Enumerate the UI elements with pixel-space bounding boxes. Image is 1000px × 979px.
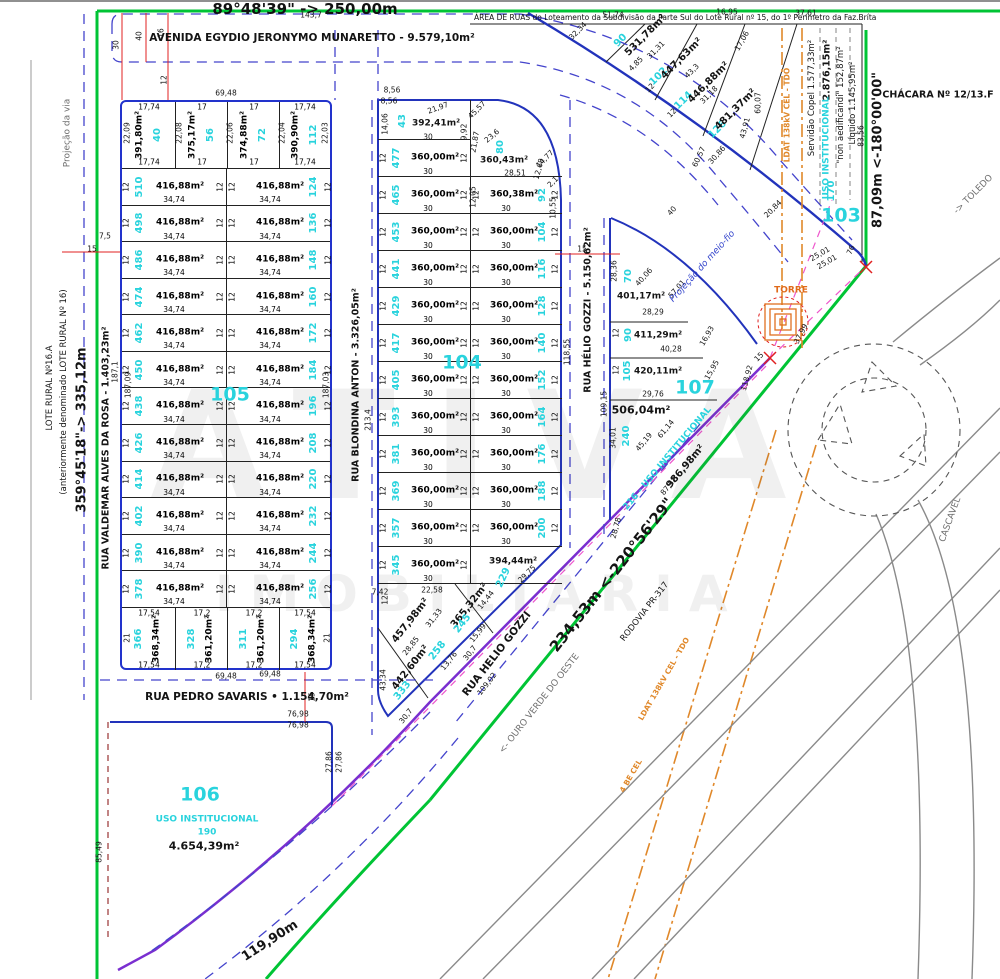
map-linework — [0, 0, 1000, 979]
dimension-red-lines — [62, 13, 872, 722]
sheet-title: ÁREA DE RUAS do Loteamento da Subdivisão… — [474, 13, 998, 22]
sheet-lines — [0, 1, 1000, 700]
boundary-north-title: 89°48'39" -> 250,00m — [120, 0, 490, 18]
strip-dashed-gray — [820, 28, 850, 210]
highway-gray-lines — [440, 258, 1000, 979]
road-purple-line — [118, 358, 770, 970]
roundabout — [788, 344, 960, 516]
boundary-green-line — [97, 11, 1000, 979]
subdivision-plat-map: ATIVA IMOBILIÁRIA 89°48'39" -> 250,00m Á… — [0, 0, 1000, 979]
torre-icon — [758, 297, 808, 347]
projection-dashed-blue — [84, 14, 852, 979]
lot-division-lines — [378, 24, 797, 698]
projection-dashed-pink — [332, 200, 864, 806]
street-blue-edges — [110, 13, 866, 806]
